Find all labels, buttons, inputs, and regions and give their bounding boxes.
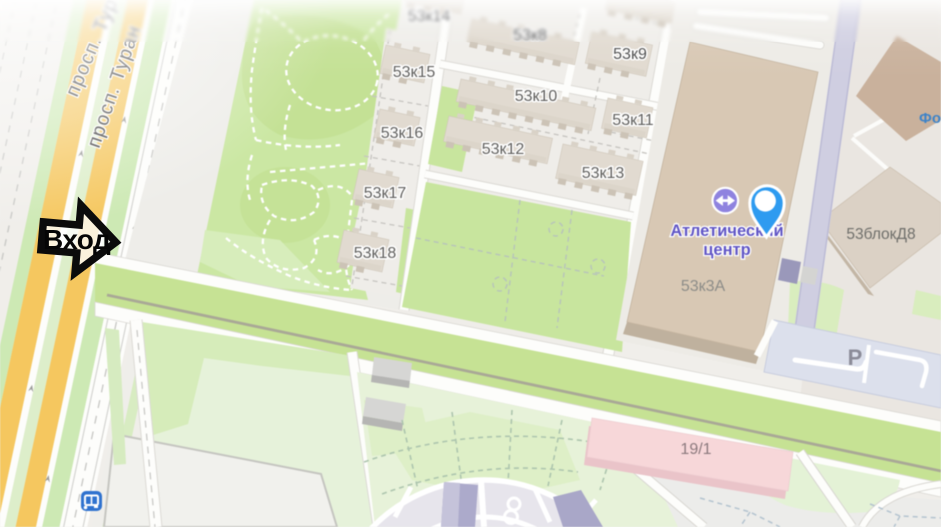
svg-text:53к12: 53к12: [482, 141, 525, 158]
svg-text:53к9: 53к9: [613, 46, 647, 63]
svg-text:P: P: [848, 345, 863, 370]
svg-text:Вход: Вход: [43, 224, 111, 255]
svg-text:53к17: 53к17: [364, 185, 407, 202]
svg-text:53к11: 53к11: [612, 112, 654, 129]
svg-text:53к8: 53к8: [513, 27, 547, 44]
svg-text:53к13: 53к13: [582, 165, 625, 182]
svg-text:53к3А: 53к3А: [681, 278, 726, 295]
svg-text:53к16: 53к16: [381, 125, 424, 142]
svg-text:53к14: 53к14: [408, 8, 451, 25]
svg-text:53блокД8: 53блокД8: [846, 226, 915, 243]
svg-text:19/1: 19/1: [680, 441, 711, 458]
svg-text:центр: центр: [703, 241, 750, 259]
svg-text:53к15: 53к15: [393, 64, 436, 81]
svg-text:53к18: 53к18: [354, 245, 397, 262]
svg-text:53к10: 53к10: [515, 88, 558, 105]
svg-text:Фо: Фо: [919, 110, 941, 127]
